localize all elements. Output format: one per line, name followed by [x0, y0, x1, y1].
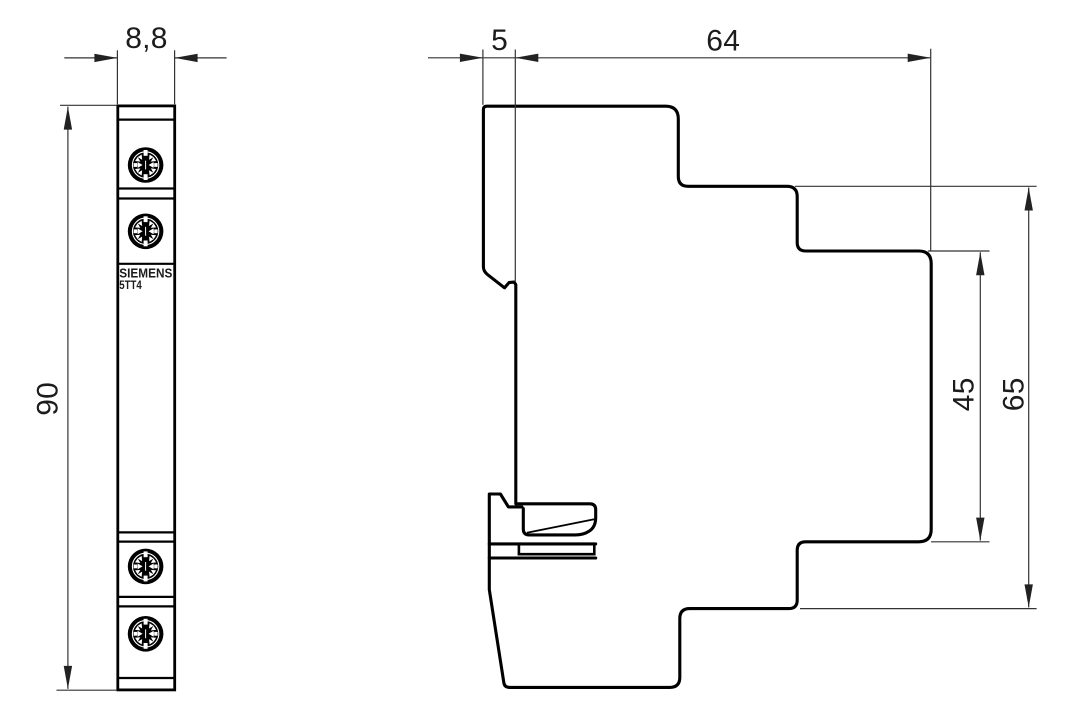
svg-text:8,8: 8,8 [125, 22, 168, 55]
svg-text:65: 65 [998, 377, 1031, 411]
svg-text:90: 90 [32, 382, 65, 416]
svg-text:5: 5 [491, 24, 508, 57]
svg-text:SIEMENS: SIEMENS [119, 266, 172, 281]
svg-text:5TT4: 5TT4 [119, 280, 142, 292]
svg-text:45: 45 [948, 377, 981, 411]
svg-text:64: 64 [706, 24, 740, 57]
